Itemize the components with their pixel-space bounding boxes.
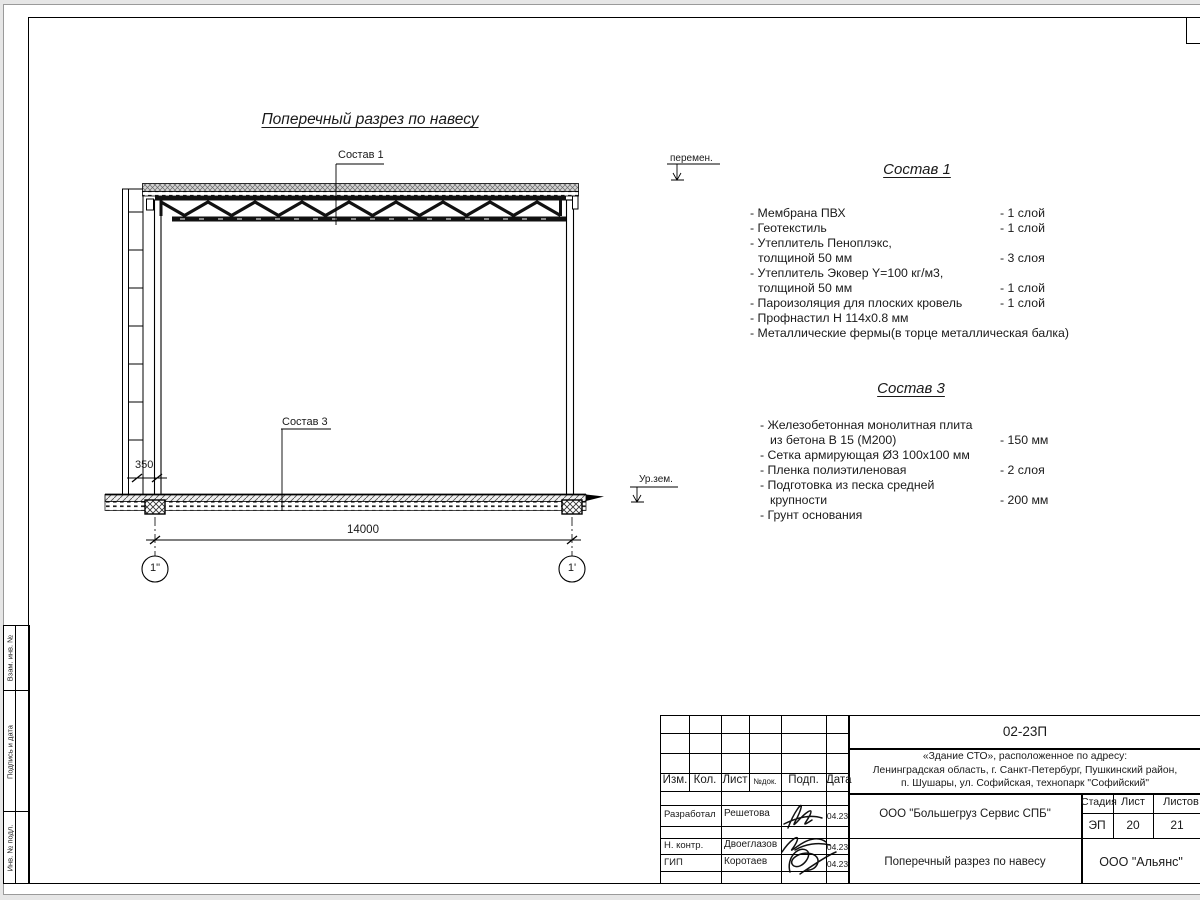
spec3-line: - Грунт основания [0,508,1200,523]
spec-item-text: - Мембрана ПВХ [750,206,846,220]
tb-header-data: Дата [826,774,849,786]
spec-item-text: - Пароизоляция для плоских кровель [750,296,962,310]
tb-drawing-name: Поперечный разрез по навесу [849,856,1081,868]
tb-stage-label: Стадия [1081,796,1113,808]
spec-item-text: толщиной 50 мм [758,281,852,295]
axis-label-left: 1" [142,562,168,574]
roof-callout-label: Состав 1 [338,149,384,161]
tb-doc-number: 02-23П [849,724,1200,739]
tb-header-list: Лист [721,774,749,786]
tb-line [721,716,722,883]
tb-line [1081,813,1200,814]
tb-name: Двоеглазов [724,839,777,850]
spec3-line: из бетона В 15 (М200)- 150 мм [0,433,1200,448]
spec1-line: - Утеплитель Эковер Y=100 кг/м3, [0,266,1200,281]
variable-level-label: перемен. [670,153,713,164]
tb-header-kol: Кол. [689,774,721,786]
spec-item-value: - 3 слоя [1000,251,1045,265]
tb-line [661,733,849,734]
spec-item-value: - 1 слой [1000,206,1045,220]
spec1-line: - Профнастил Н 114х0.8 мм [0,311,1200,326]
spec-item-text: - Геотекстиль [750,221,827,235]
spec-item-value: - 2 слоя [1000,463,1045,477]
spec-item-text: - Профнастил Н 114х0.8 мм [750,311,908,325]
spec-item-text: - Утеплитель Эковер Y=100 кг/м3, [750,266,943,280]
tb-name: Коротаев [724,856,767,867]
spec-item-value: - 1 слой [1000,296,1045,310]
spec1-line: толщиной 50 мм- 3 слоя [0,251,1200,266]
tb-sheet-value: 20 [1113,818,1153,832]
spec-item-text: - Сетка армирующая Ø3 100х100 мм [760,448,970,462]
tb-project-address: «Здание СТО», расположенное по адресу: Л… [851,750,1199,791]
spec-item-text: - Подготовка из песка средней [760,478,934,492]
side-strip-cell: Подпись и дата [4,690,16,812]
spec-item-value: - 1 слой [1000,281,1045,295]
divider [15,811,29,812]
spec-item-value: - 150 мм [1000,433,1048,447]
side-strip-label: Инв. № подл. [5,825,14,872]
tb-line [661,805,849,806]
tb-line [661,791,849,792]
tb-header-podp: Подп. [781,774,826,786]
tb-sheets-value: 21 [1153,818,1200,832]
spec3-line: - Сетка армирующая Ø3 100х100 мм [0,448,1200,463]
spec-item-text: толщиной 50 мм [758,251,852,265]
tb-role: ГИП [664,857,683,868]
tb-line [849,793,1200,795]
side-strip: Взам. инв. № Подпись и дата Инв. № подл. [3,625,30,884]
spec-item-value: - 1 слой [1000,221,1045,235]
tb-stage-value: ЭП [1081,818,1113,832]
corner-stamp-box [1186,17,1200,44]
spec-item-text: - Железобетонная монолитная плита [760,418,972,432]
spec1-line: - Металлические фермы(в торце металличес… [0,326,1200,341]
tb-name: Решетова [724,808,770,819]
side-strip-label: Подпись и дата [5,725,14,779]
spec-item-text: из бетона В 15 (М200) [770,433,896,447]
spec3-heading: Состав 3 [856,380,966,397]
tb-line [661,753,849,754]
spec3-line: - Подготовка из песка средней [0,478,1200,493]
tb-line [661,854,849,855]
spec1-line: толщиной 50 мм- 1 слой [0,281,1200,296]
tb-header-ndok: №док. [749,777,781,786]
tb-date: 04.23 [826,842,849,852]
title-block: Изм. Кол. Лист №док. Подп. Дата Разработ… [660,715,1200,884]
spec3-line: крупности- 200 мм [0,493,1200,508]
side-strip-cell: Инв. № подл. [4,811,16,884]
spec1-line: - Мембрана ПВХ- 1 слой [0,206,1200,221]
tb-line [661,826,849,827]
divider [15,690,29,691]
tb-sheets-label: Листов [1153,796,1200,808]
spec1-line: - Утеплитель Пеноплэкс, [0,236,1200,251]
tb-date: 04.23 [826,859,849,869]
spec-item-text: - Грунт основания [760,508,862,522]
dim-label-span: 14000 [328,524,398,536]
spec1-line: - Пароизоляция для плоских кровель- 1 сл… [0,296,1200,311]
tb-role: Разработал [664,809,716,820]
side-strip-cell: Взам. инв. № [4,626,16,690]
spec-item-text: - Металлические фермы(в торце металличес… [750,326,1069,340]
spec3-line: - Железобетонная монолитная плита [0,418,1200,433]
tb-line [661,871,849,872]
drawing-title: Поперечный разрез по навесу [245,111,495,129]
side-strip-label: Взам. инв. № [5,635,14,681]
tb-contractor: ООО "Большегруз Сервис СПБ" [849,808,1081,820]
tb-role: Н. контр. [664,840,703,851]
spec-item-text: - Пленка полиэтиленовая [760,463,906,477]
tb-org: ООО "Альянс" [1081,855,1200,869]
spec1-heading: Состав 1 [862,161,972,178]
spec-item-text: крупности [770,493,827,507]
axis-label-right: 1' [559,562,585,574]
tb-header-izm: Изм. [661,774,689,786]
tb-line [781,716,782,883]
spec-item-value: - 200 мм [1000,493,1048,507]
tb-date: 04.23 [826,811,849,821]
tb-line [826,716,827,883]
spec3-line: - Пленка полиэтиленовая- 2 слоя [0,463,1200,478]
spec1-line: - Геотекстиль- 1 слой [0,221,1200,236]
spec-item-text: - Утеплитель Пеноплэкс, [750,236,892,250]
tb-sheet-label: Лист [1113,796,1153,808]
